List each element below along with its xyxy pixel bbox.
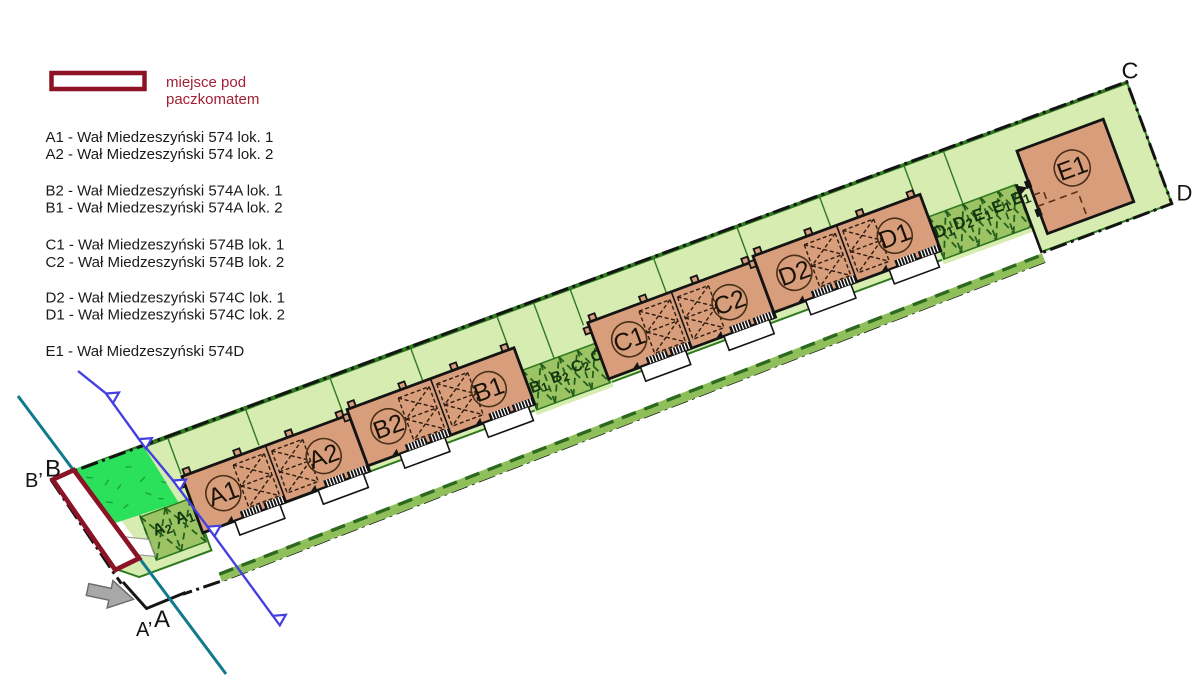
svg-text:B: B (45, 456, 61, 483)
svg-text:D2 - Wał Miedzeszyński 574C lo: D2 - Wał Miedzeszyński 574C lok. 1 (46, 290, 286, 307)
svg-text:A: A (154, 606, 170, 633)
svg-text:D1 - Wał Miedzeszyński 574C lo: D1 - Wał Miedzeszyński 574C lok. 2 (46, 306, 286, 323)
svg-text:C1 - Wał Miedzeszyński 574B lo: C1 - Wał Miedzeszyński 574B lok. 1 (46, 237, 285, 254)
svg-text:A2 - Wał Miedzeszyński 574 lok: A2 - Wał Miedzeszyński 574 lok. 2 (46, 146, 274, 163)
svg-text:E1 - Wał Miedzeszyński 574D: E1 - Wał Miedzeszyński 574D (46, 343, 245, 360)
svg-text:miejsce pod: miejsce pod (166, 74, 246, 91)
svg-text:B2 - Wał Miedzeszyński 574A lo: B2 - Wał Miedzeszyński 574A lok. 1 (46, 182, 283, 199)
svg-text:A’: A’ (136, 619, 152, 641)
svg-text:D: D (1177, 181, 1193, 206)
svg-text:paczkomatem: paczkomatem (166, 91, 259, 108)
svg-text:B’: B’ (25, 470, 43, 492)
svg-text:B1 - Wał Miedzeszyński 574A lo: B1 - Wał Miedzeszyński 574A lok. 2 (46, 200, 283, 217)
svg-text:A1 - Wał Miedzeszyński 574 lok: A1 - Wał Miedzeszyński 574 lok. 1 (46, 129, 274, 146)
svg-text:C2 - Wał Miedzeszyński 574B lo: C2 - Wał Miedzeszyński 574B lok. 2 (46, 254, 285, 271)
svg-text:C: C (1122, 58, 1139, 84)
